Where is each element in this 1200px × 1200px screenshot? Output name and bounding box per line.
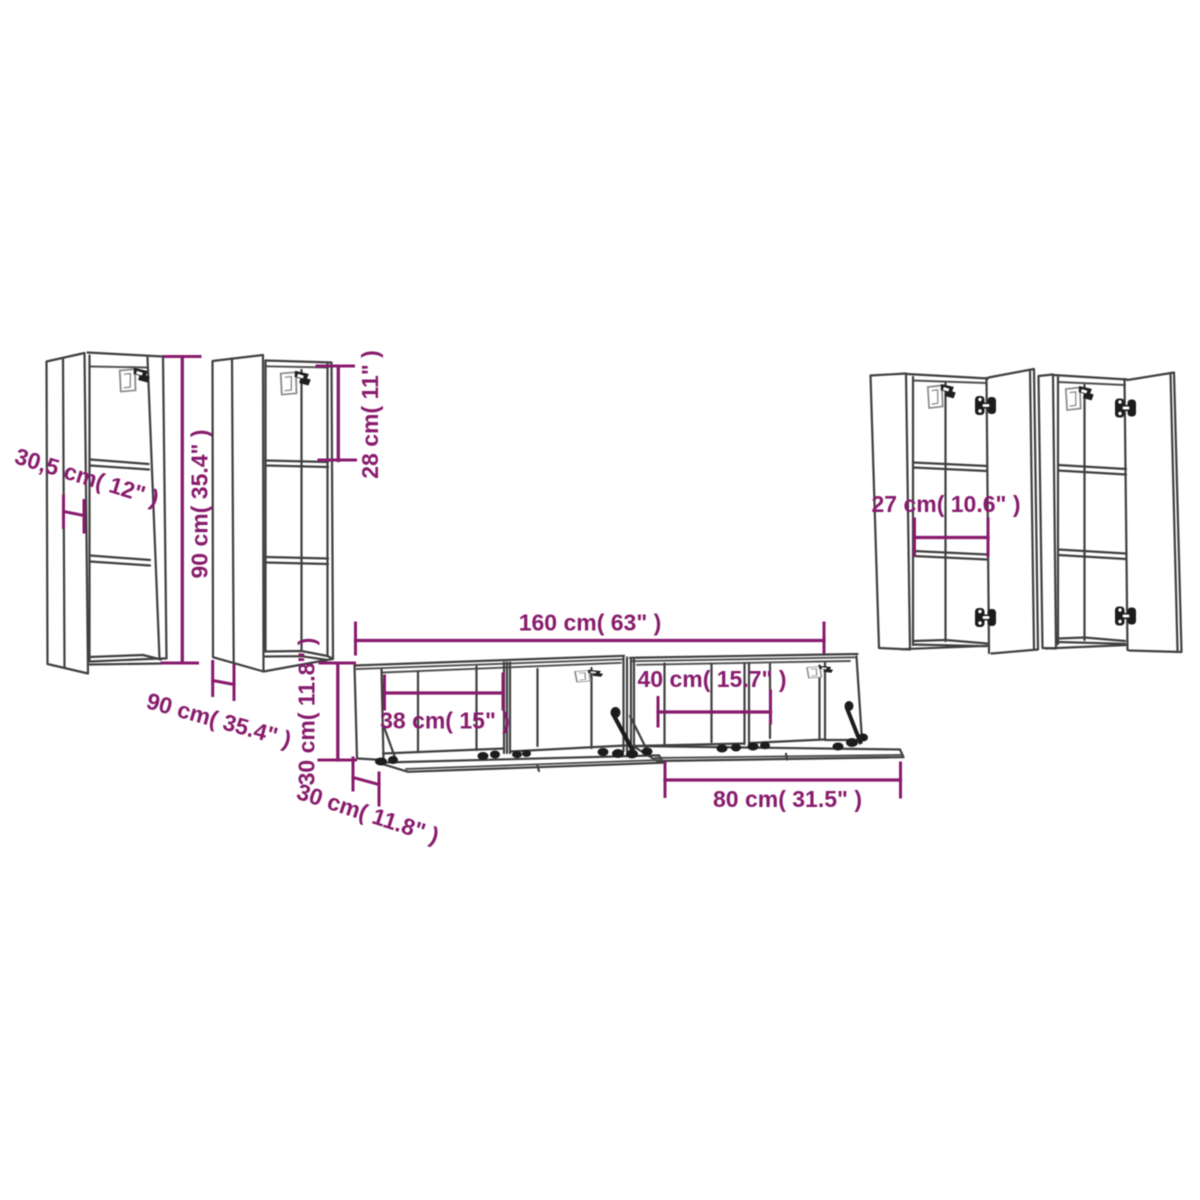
svg-text:38 cm( 15" ): 38 cm( 15" ) <box>380 708 510 734</box>
svg-text:160 cm( 63" ): 160 cm( 63" ) <box>519 610 662 636</box>
svg-text:30 cm( 11.8" ): 30 cm( 11.8" ) <box>294 638 320 786</box>
svg-text:28 cm( 11" ): 28 cm( 11" ) <box>357 350 383 479</box>
svg-text:27 cm( 10.6" ): 27 cm( 10.6" ) <box>872 491 1021 517</box>
svg-text:40 cm( 15.7" ): 40 cm( 15.7" ) <box>638 666 787 692</box>
svg-text:80 cm( 31.5" ): 80 cm( 31.5" ) <box>713 786 862 812</box>
svg-text:90 cm( 35.4" ): 90 cm( 35.4" ) <box>187 430 213 579</box>
